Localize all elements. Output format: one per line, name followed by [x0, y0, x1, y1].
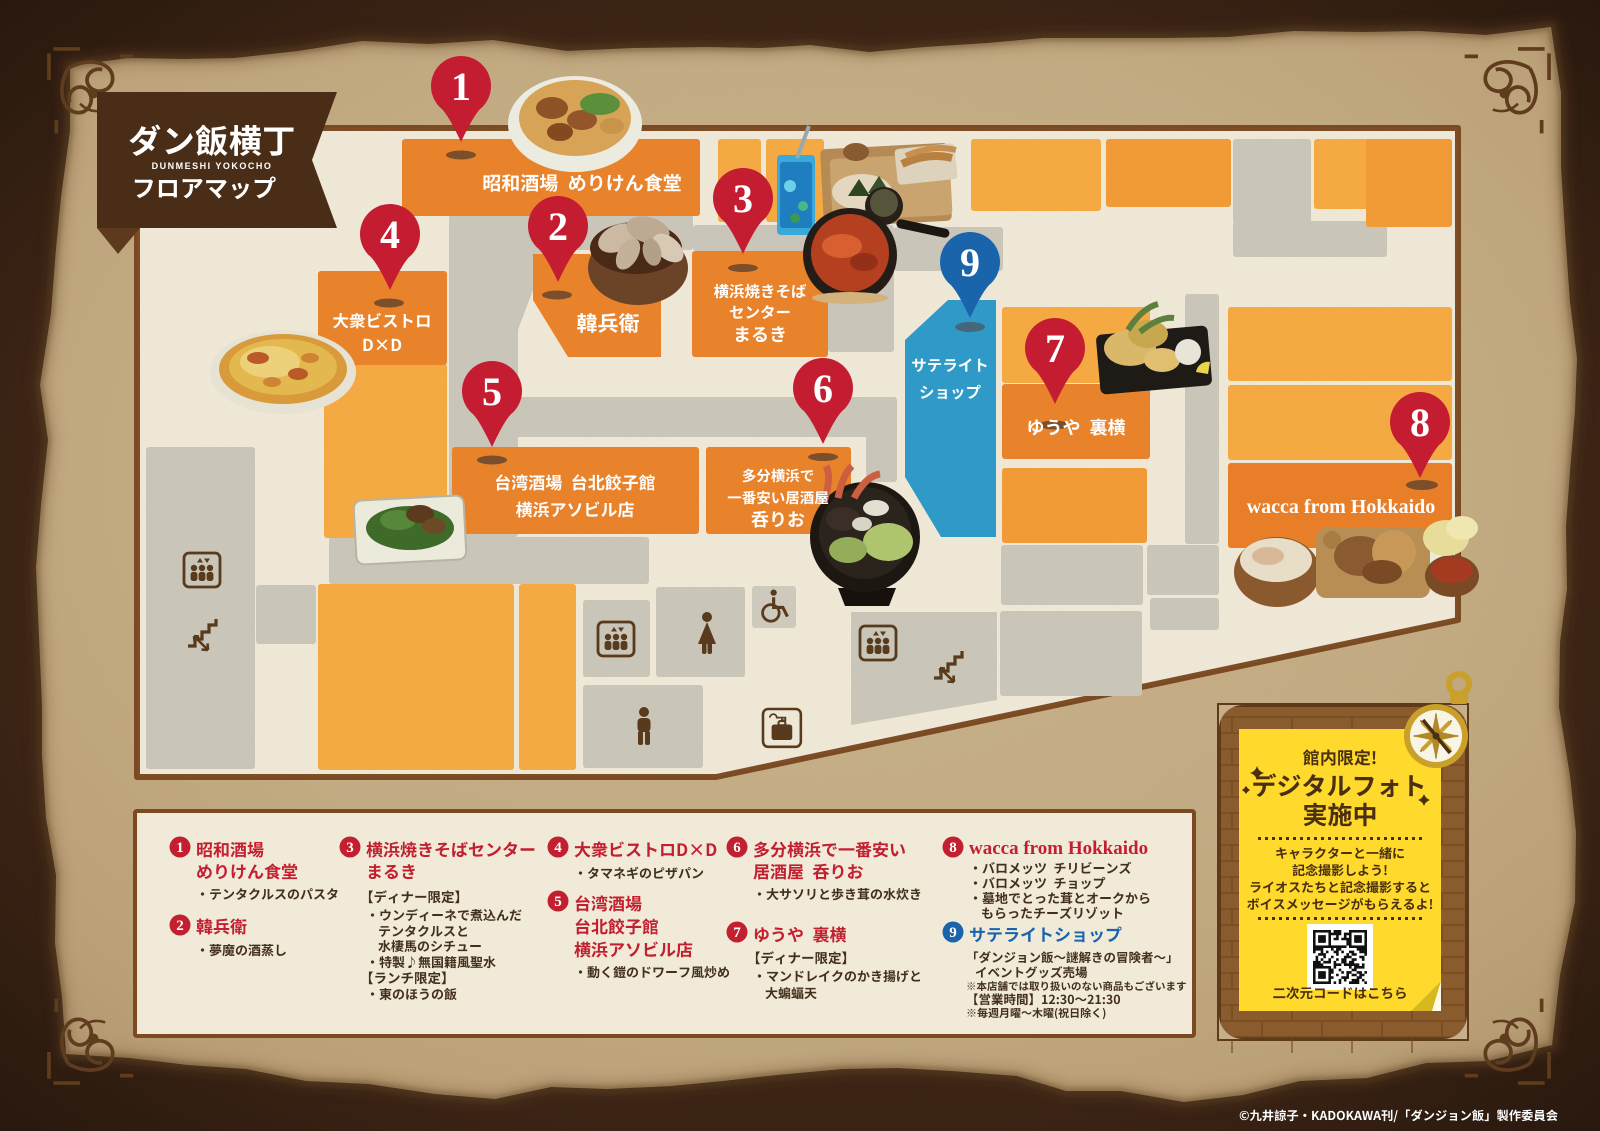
svg-text:2: 2 — [176, 918, 184, 934]
svg-text:4: 4 — [380, 212, 400, 257]
svg-text:5: 5 — [482, 369, 502, 414]
svg-text:DUNMESHI YOKOCHO: DUNMESHI YOKOCHO — [152, 161, 273, 171]
svg-text:1: 1 — [451, 64, 471, 109]
svg-text:2: 2 — [548, 204, 568, 249]
svg-text:3: 3 — [346, 840, 354, 856]
svg-text:8: 8 — [1410, 400, 1430, 445]
svg-text:5: 5 — [554, 894, 562, 910]
svg-text:8: 8 — [949, 840, 957, 856]
svg-text:6: 6 — [813, 366, 833, 411]
svg-text:7: 7 — [733, 925, 741, 941]
svg-text:wacca from Hokkaido: wacca from Hokkaido — [969, 838, 1148, 859]
svg-text:9: 9 — [949, 925, 957, 941]
svg-text:4: 4 — [554, 840, 562, 856]
svg-text:wacca from Hokkaido: wacca from Hokkaido — [1247, 496, 1436, 518]
svg-text:3: 3 — [733, 176, 753, 221]
svg-text:9: 9 — [960, 240, 980, 285]
svg-text:6: 6 — [733, 840, 741, 856]
svg-text:7: 7 — [1045, 326, 1065, 371]
svg-text:1: 1 — [176, 840, 184, 856]
